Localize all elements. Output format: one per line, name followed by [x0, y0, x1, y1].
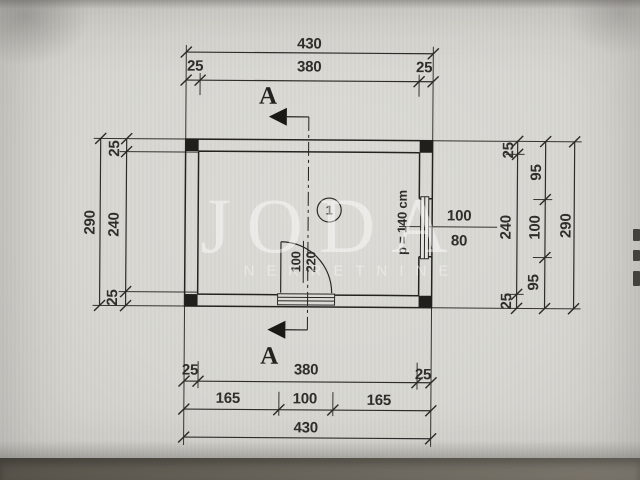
window-width: 100	[447, 208, 472, 223]
dim-right-wall-bottom: 25	[499, 293, 514, 309]
window-leader-line	[399, 227, 497, 228]
dim-bottom-inner: 380	[294, 362, 319, 377]
dim-right-seg-below-window: 95	[526, 274, 541, 290]
section-arrow-icon-bottom	[267, 321, 285, 339]
dim-bottom-wall-left: 25	[182, 363, 198, 378]
photo-top-edge	[0, 0, 640, 9]
section-label-top: A	[259, 83, 277, 111]
photo-edge-mark	[633, 229, 640, 241]
dim-top-wall-right: 25	[416, 60, 432, 75]
window-height: 80	[451, 233, 467, 248]
dim-left-inner: 240	[107, 212, 122, 237]
dim-right-seg-above-window: 95	[529, 164, 544, 180]
section-label-bottom: A	[260, 343, 278, 371]
window-symbol	[420, 197, 428, 259]
dim-bottom-total: 430	[293, 420, 318, 435]
dim-right-wall-top: 25	[501, 142, 516, 158]
dim-right-window: 100	[528, 215, 543, 240]
window-parapet-note: p = 140 cm	[395, 190, 408, 255]
floor-plan-photo: 430 25 380 25 A A 290 25 240 25 1 p = 14…	[0, 0, 640, 480]
dim-left-wall-top: 25	[107, 140, 122, 156]
room-number: 1	[326, 203, 333, 218]
photo-edge-mark	[633, 271, 640, 286]
door-height: 220	[304, 251, 317, 272]
dim-top-wall-left: 25	[187, 59, 203, 74]
tick-marks	[93, 46, 581, 445]
photo-bottom-shadow	[0, 441, 640, 458]
extension-lines	[92, 44, 583, 447]
door-threshold	[278, 294, 335, 305]
dim-left-wall-bottom: 25	[105, 289, 120, 305]
floor-plan-drawing: 430 25 380 25 A A 290 25 240 25 1 p = 14…	[0, 0, 640, 480]
photo-edge-mark	[633, 250, 640, 261]
photo-corner-shadow-left	[0, 0, 90, 66]
photo-corner-shadow-right	[565, 0, 640, 55]
dimension-lines	[99, 51, 576, 439]
dim-right-inner: 240	[499, 215, 514, 240]
photo-bottom-edge	[0, 458, 640, 480]
dim-bottom-seg-right: 165	[367, 393, 392, 408]
dim-bottom-seg-left: 165	[216, 391, 241, 406]
dim-left-total: 290	[83, 210, 98, 235]
dim-bottom-door: 100	[293, 391, 318, 406]
door-width: 100	[289, 251, 302, 272]
dim-top-inner: 380	[297, 59, 322, 74]
dim-bottom-wall-right: 25	[415, 367, 431, 382]
dim-top-total: 430	[297, 36, 322, 51]
dim-right-total: 290	[559, 213, 574, 238]
